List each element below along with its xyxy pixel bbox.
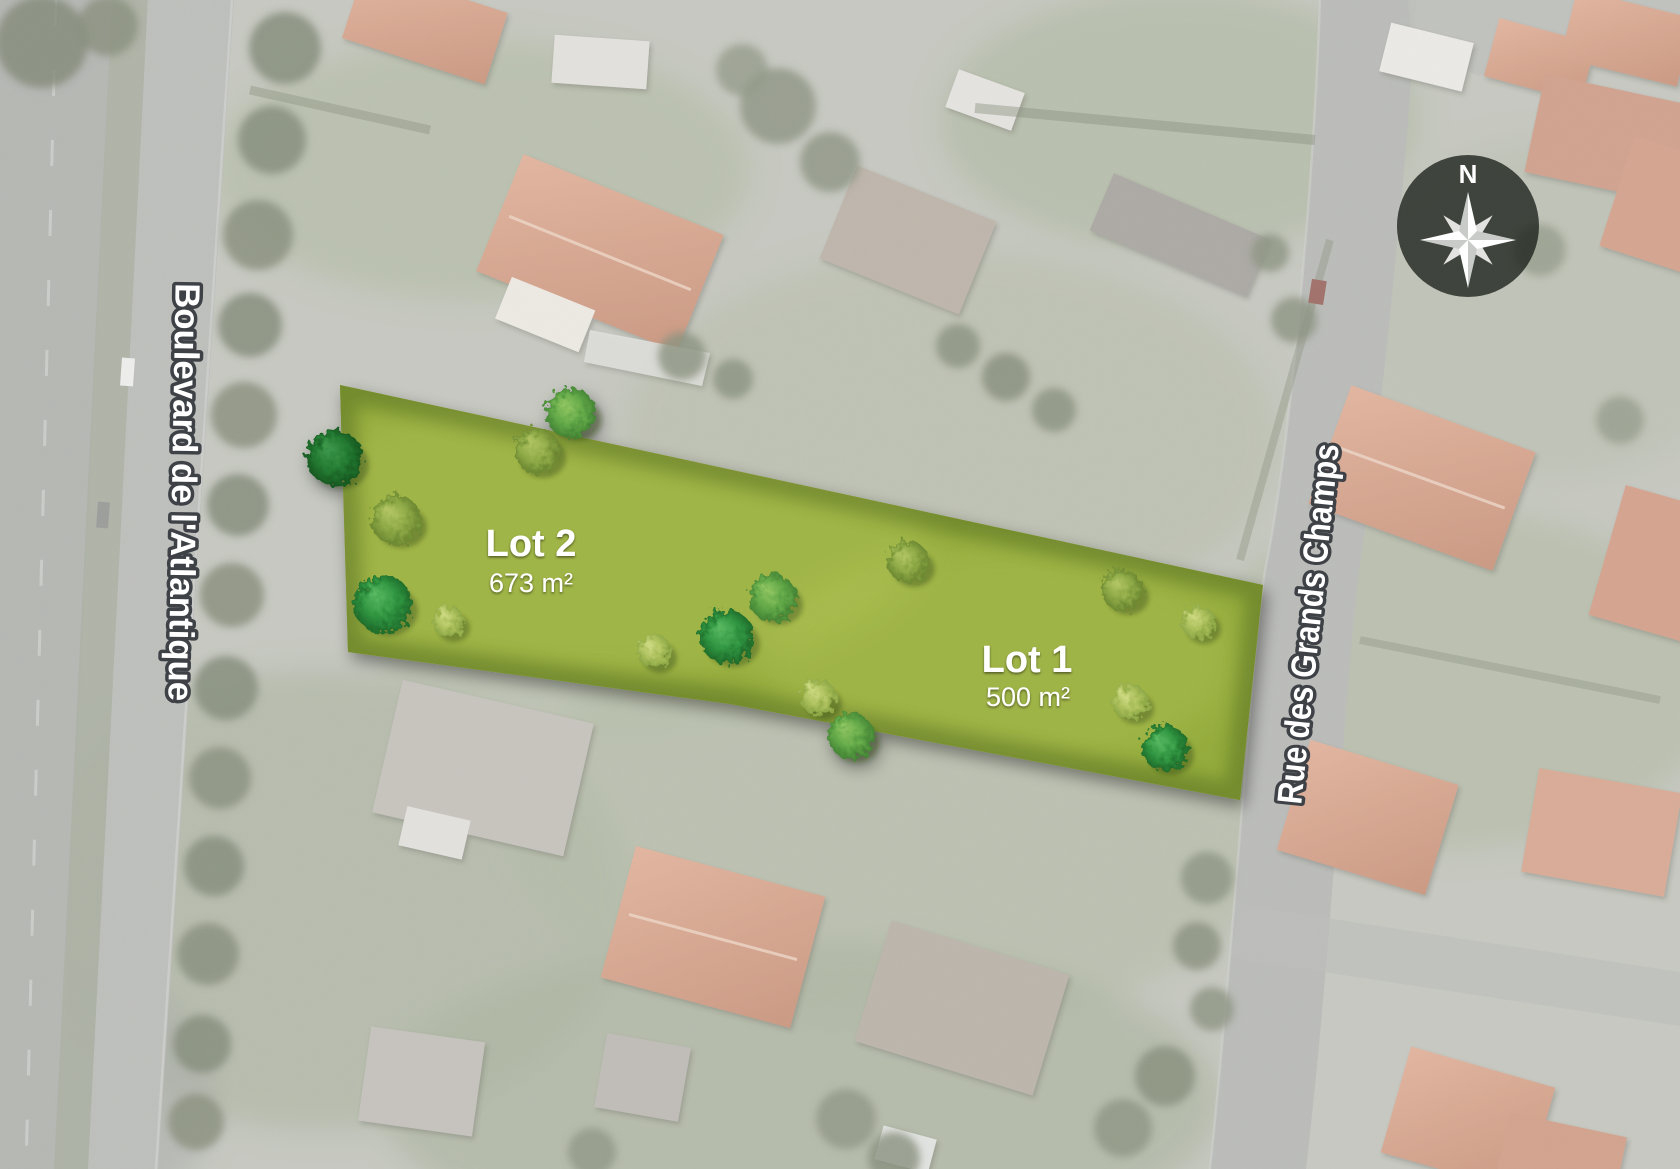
- tree: [800, 679, 836, 715]
- tree: [1142, 725, 1188, 771]
- tree: [749, 574, 797, 622]
- tree: [354, 575, 412, 633]
- compass-north-label: N: [1459, 159, 1478, 189]
- tree: [637, 634, 671, 668]
- tree: [1101, 569, 1143, 611]
- lot-2-label: Lot 2: [486, 523, 577, 565]
- tree: [546, 388, 596, 438]
- site-plan-map: Lot 2 673 m² Lot 1 500 m² Boulevard de l…: [0, 0, 1680, 1169]
- compass: N: [1397, 155, 1539, 297]
- tree: [828, 713, 874, 759]
- tree: [432, 605, 464, 637]
- tree: [307, 430, 363, 486]
- site-plan: Lot 2 673 m² Lot 1 500 m² Boulevard de l…: [0, 0, 1680, 1169]
- lot-1-area-label: 500 m²: [986, 682, 1070, 712]
- tree: [1181, 605, 1215, 639]
- street-label-boulevard: Boulevard de l'Atlantique: [160, 283, 206, 702]
- lot-1-label: Lot 1: [982, 639, 1073, 681]
- tree: [514, 428, 560, 474]
- tree: [700, 610, 754, 664]
- tree: [1112, 684, 1148, 720]
- tree: [887, 541, 929, 583]
- tree: [371, 495, 421, 545]
- lot-2-area-label: 673 m²: [489, 568, 573, 598]
